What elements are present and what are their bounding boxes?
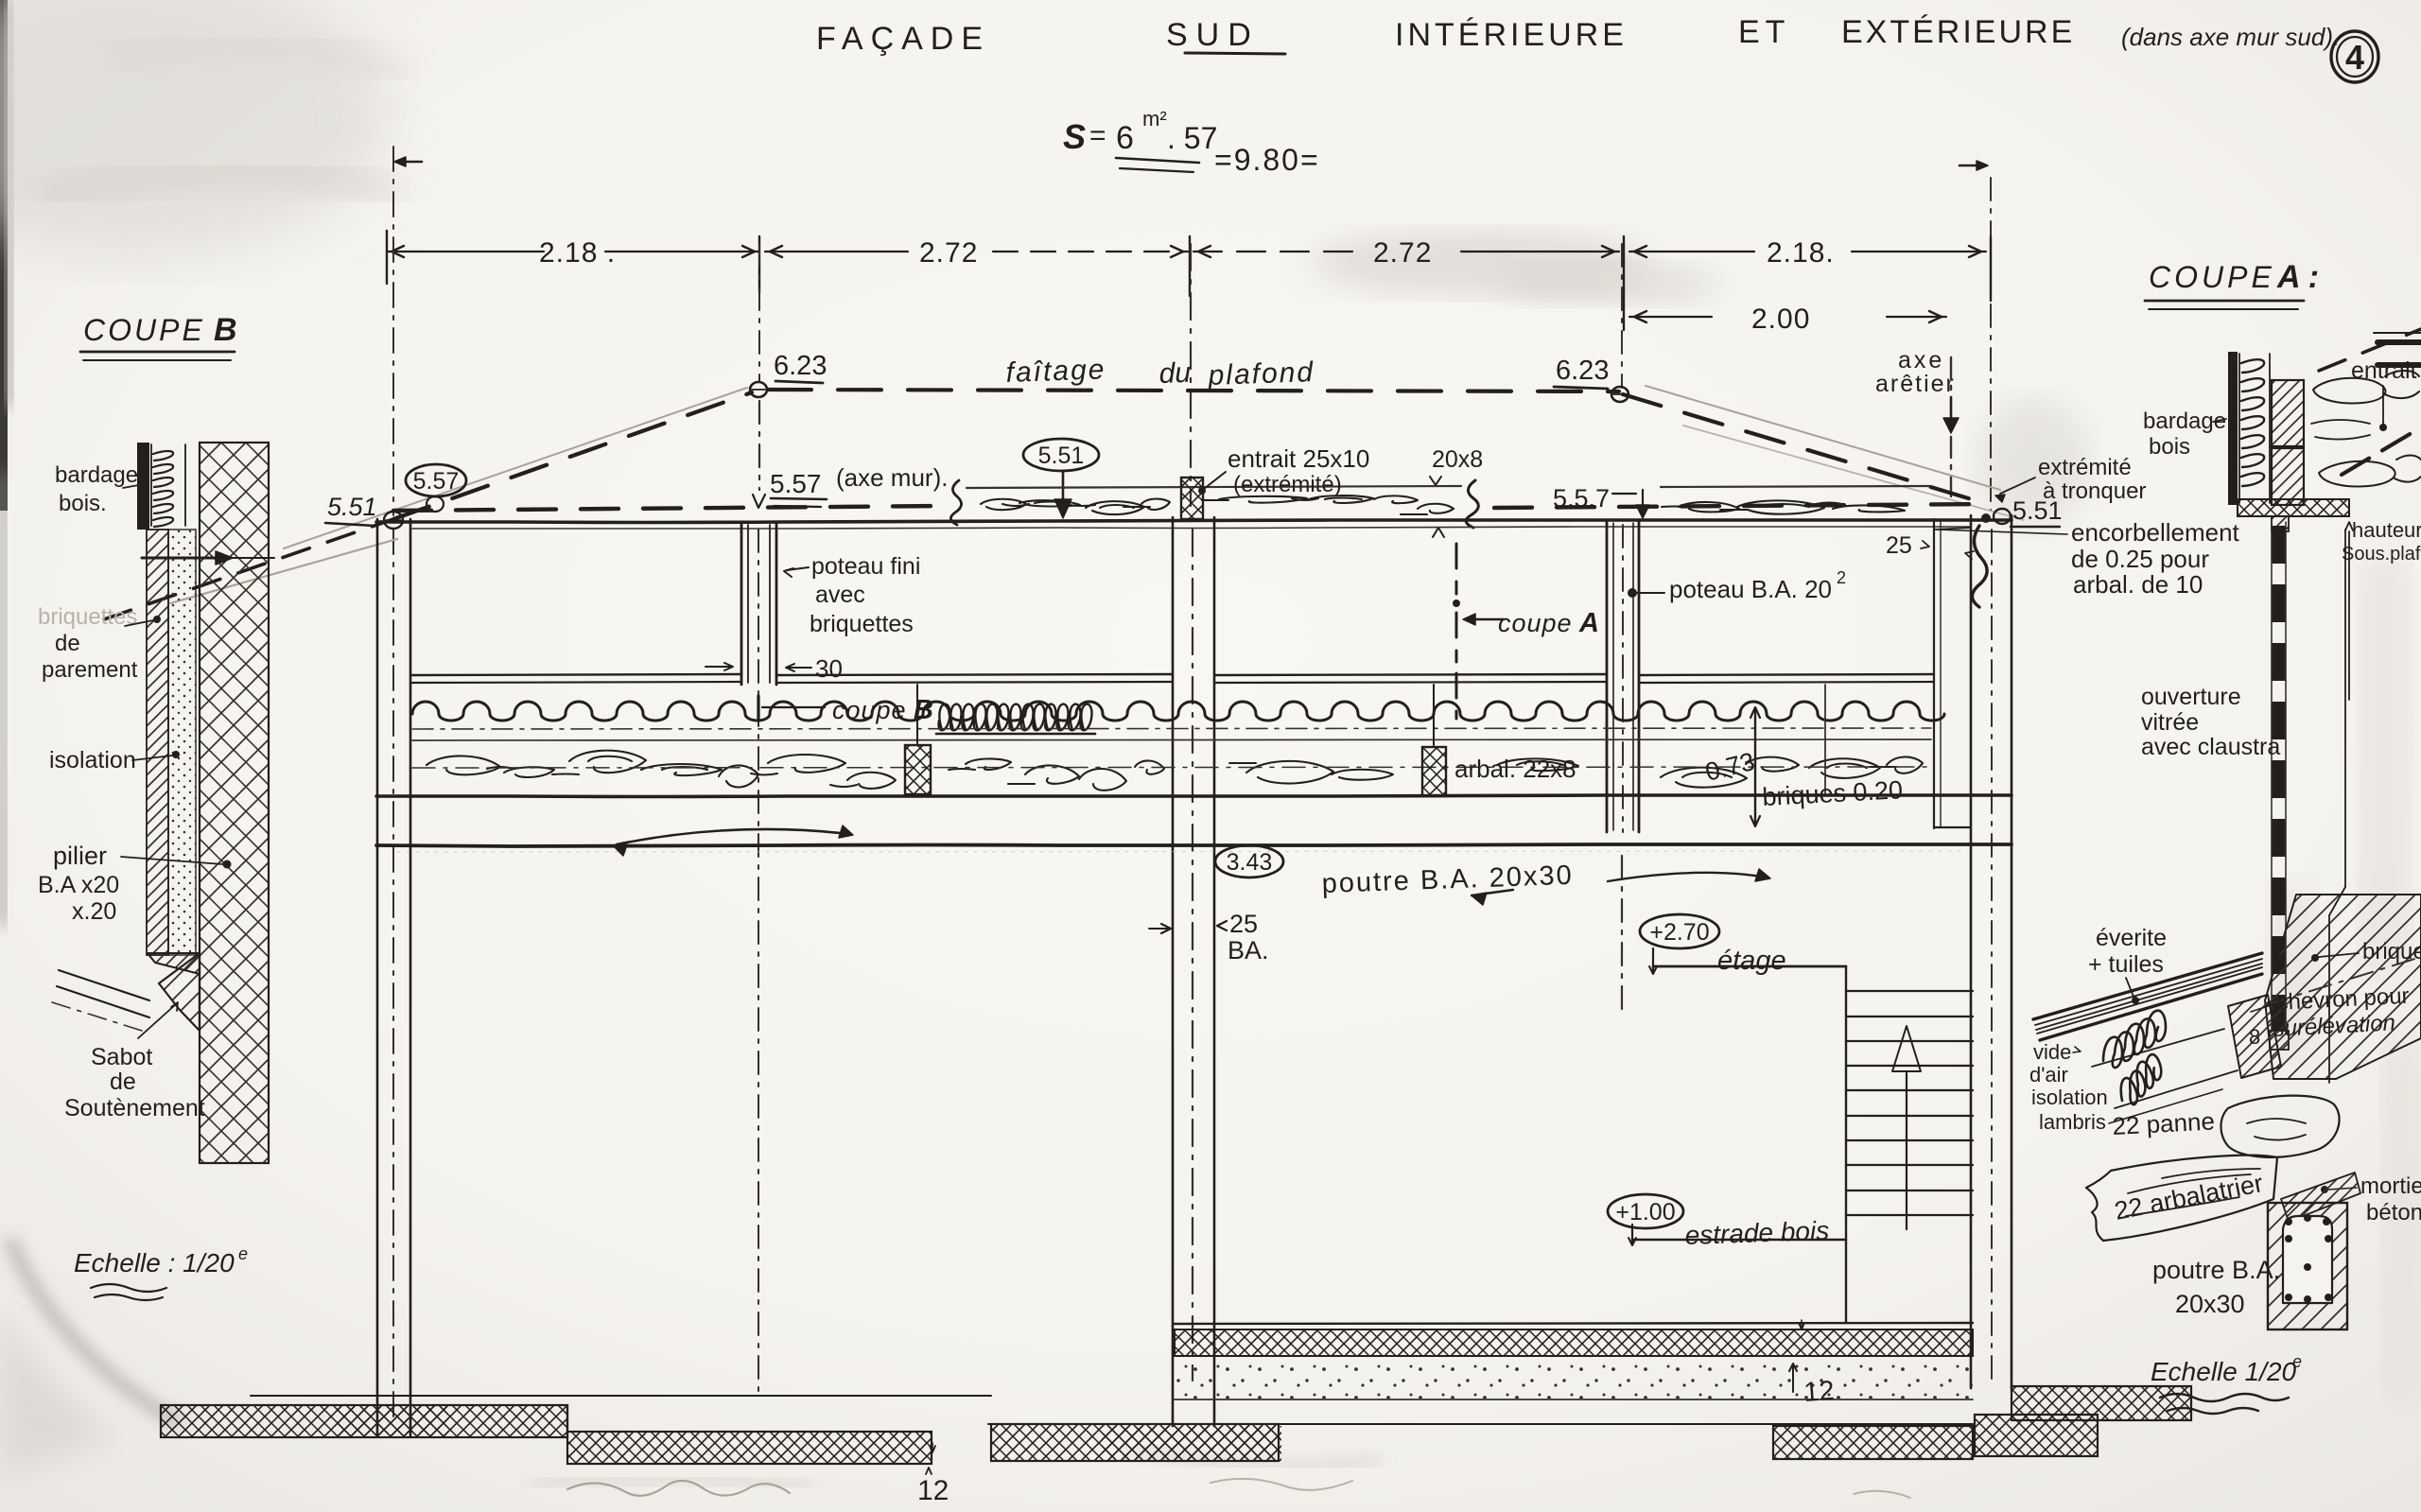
svg-text:Echelle 1/20: Echelle 1/20 — [2151, 1357, 2297, 1386]
svg-text:bois: bois — [2149, 434, 2190, 460]
svg-text:plafond: plafond — [1207, 356, 1315, 391]
svg-text:avec: avec — [815, 582, 865, 608]
svg-text:poutre B.A.: poutre B.A. — [2152, 1256, 2280, 1284]
svg-text:(extrémité): (extrémité) — [1233, 472, 1342, 497]
svg-text:éverite: éverite — [2096, 925, 2167, 951]
svg-text:de: de — [110, 1069, 136, 1095]
svg-text:+2.70: +2.70 — [1649, 919, 1709, 946]
svg-text:arbal. de 10: arbal. de 10 — [2073, 570, 2203, 599]
svg-text:Sous.plafond: Sous.plafond — [2342, 544, 2421, 565]
svg-text:extrémité: extrémité — [2038, 455, 2132, 480]
svg-text:6.23: 6.23 — [774, 351, 827, 381]
svg-text:vide: vide — [2033, 1040, 2071, 1064]
svg-text:(dans axe mur sud).: (dans axe mur sud). — [2121, 23, 2340, 51]
svg-text:hauteur: hauteur — [2352, 518, 2421, 542]
svg-text:12: 12 — [917, 1475, 949, 1506]
svg-text:de 0.25 pour: de 0.25 pour — [2071, 545, 2209, 573]
svg-text:étage: étage — [1717, 946, 1786, 976]
svg-text:25: 25 — [1229, 910, 1258, 938]
svg-text:+ tuiles: + tuiles — [2088, 951, 2164, 978]
svg-text:22 panne: 22 panne — [2112, 1106, 2216, 1140]
svg-text:briquettes: briquettes — [38, 604, 137, 630]
svg-text:25: 25 — [1886, 532, 1912, 559]
svg-text:A: A — [1578, 608, 1599, 638]
svg-text:4: 4 — [2345, 38, 2364, 77]
svg-text:=9.80=: =9.80= — [1214, 143, 1320, 177]
svg-text:5.57: 5.57 — [770, 469, 822, 498]
svg-text:du: du — [1158, 357, 1192, 390]
svg-text:5.57: 5.57 — [413, 468, 460, 495]
svg-text:entrait: entrait — [2351, 357, 2417, 384]
svg-text:Sabot: Sabot — [91, 1044, 152, 1070]
svg-text:BA.: BA. — [1228, 936, 1269, 965]
svg-text:12: 12 — [1803, 1376, 1835, 1408]
svg-text:2.72: 2.72 — [919, 237, 978, 269]
svg-text:pilier: pilier — [53, 842, 107, 870]
svg-text:A :: A : — [2276, 259, 2319, 295]
svg-text:m²: m² — [1142, 107, 1167, 130]
svg-text:isolation: isolation — [2031, 1086, 2108, 1109]
svg-text:estrade bois: estrade bois — [1684, 1216, 1830, 1250]
svg-text:B: B — [914, 695, 933, 725]
svg-text:béton: béton — [2366, 1200, 2421, 1225]
svg-text:lambris: lambris — [2039, 1110, 2106, 1134]
svg-text:bois.: bois. — [59, 491, 107, 516]
svg-text:faîtage: faîtage — [1005, 354, 1106, 389]
svg-text:poteau fini: poteau fini — [811, 553, 920, 580]
svg-text:encorbellement: encorbellement — [2071, 518, 2240, 547]
svg-text:SUD: SUD — [1166, 17, 1260, 53]
svg-text:2.18.: 2.18. — [1767, 237, 1835, 269]
svg-text:e: e — [2292, 1352, 2302, 1371]
svg-text:Echelle : 1/20: Echelle : 1/20 — [74, 1248, 235, 1277]
svg-text:coupe: coupe — [1498, 609, 1573, 637]
svg-text:bardage: bardage — [55, 462, 138, 488]
svg-text:parement: parement — [42, 657, 138, 683]
svg-text:d'air: d'air — [2029, 1063, 2068, 1086]
svg-text:FAÇADE: FAÇADE — [816, 21, 990, 57]
svg-text:arbal. 22x8: arbal. 22x8 — [1454, 755, 1576, 783]
svg-text:isolation: isolation — [49, 747, 136, 773]
svg-text:B: B — [214, 312, 237, 348]
svg-text:5.51: 5.51 — [327, 493, 377, 521]
svg-text:2.18 .: 2.18 . — [539, 237, 616, 269]
svg-text:6: 6 — [1116, 120, 1134, 156]
svg-text:30: 30 — [815, 654, 843, 683]
svg-text:EXTÉRIEURE: EXTÉRIEURE — [1841, 14, 2075, 50]
svg-text:(axe mur).: (axe mur). — [836, 463, 948, 492]
svg-text:6.23: 6.23 — [1556, 356, 1609, 386]
svg-text:arêtier: arêtier — [1875, 371, 1956, 397]
svg-text:INTÉRIEURE: INTÉRIEURE — [1395, 17, 1628, 53]
svg-text:e: e — [238, 1244, 248, 1263]
svg-text:5.5.7: 5.5.7 — [1553, 484, 1610, 513]
svg-text:COUPE: COUPE — [83, 313, 205, 347]
svg-text:Soutènement: Soutènement — [64, 1095, 205, 1121]
svg-text:20x30: 20x30 — [2175, 1290, 2245, 1318]
svg-text:B.A x20: B.A x20 — [38, 872, 119, 898]
svg-text:S: S — [1063, 117, 1086, 156]
svg-text:briquettes: briquettes — [810, 611, 914, 637]
svg-text:+1.00: +1.00 — [1615, 1199, 1675, 1225]
svg-text:ET: ET — [1738, 14, 1790, 50]
svg-text:8: 8 — [2249, 1025, 2260, 1049]
svg-text:20x8: 20x8 — [1432, 446, 1483, 473]
svg-text:avec claustra: avec claustra — [2141, 734, 2280, 760]
svg-text:entrait 25x10: entrait 25x10 — [1228, 444, 1369, 473]
svg-text:2: 2 — [1837, 568, 1846, 587]
svg-text:x.20: x.20 — [72, 898, 116, 925]
svg-text:5.51: 5.51 — [1038, 443, 1085, 469]
svg-text:ouverture: ouverture — [2141, 684, 2241, 710]
svg-text:coupe: coupe — [832, 696, 907, 724]
svg-text:2.72: 2.72 — [1373, 237, 1432, 269]
svg-text:=: = — [1089, 120, 1106, 151]
svg-text:vitrée: vitrée — [2141, 709, 2199, 736]
svg-text:COUPE: COUPE — [2149, 260, 2275, 294]
svg-text:. 57: . 57 — [1167, 121, 1217, 155]
svg-text:2.00: 2.00 — [1751, 304, 1810, 335]
svg-text:mortier: mortier — [2360, 1173, 2421, 1199]
svg-text:poteau B.A. 20: poteau B.A. 20 — [1669, 575, 1832, 603]
svg-text:de: de — [55, 631, 80, 656]
svg-text:3.43: 3.43 — [1227, 849, 1273, 876]
svg-text:briques: briques — [2362, 939, 2421, 965]
svg-text:axe: axe — [1898, 347, 1944, 374]
svg-text:à tronquer: à tronquer — [2043, 478, 2146, 504]
